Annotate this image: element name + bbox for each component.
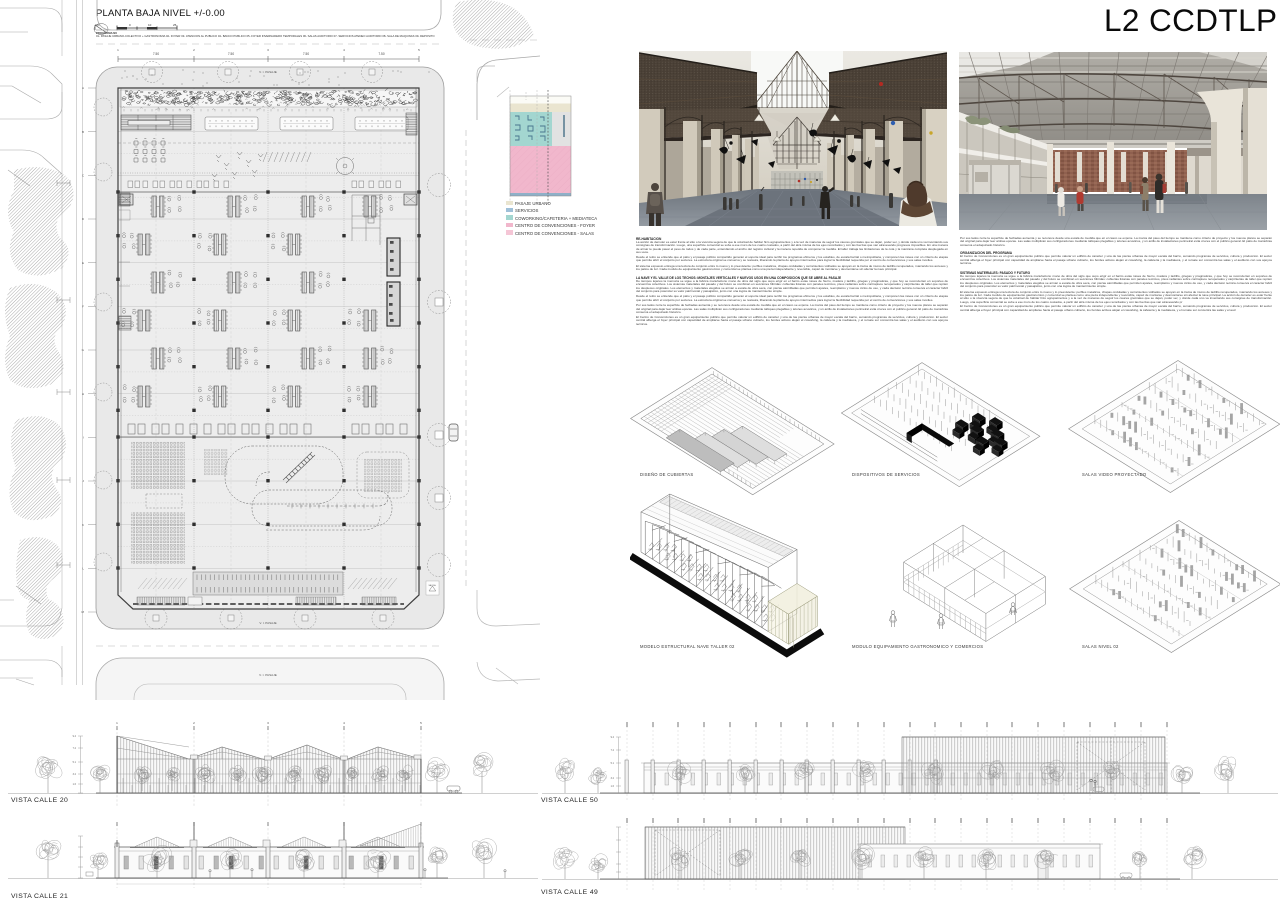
svg-text:B: B [82, 130, 84, 134]
svg-text:7.2: 7.2 [611, 749, 615, 752]
svg-text:E: E [82, 261, 84, 265]
svg-text:MODELO ESTRUCTURAL NAVE TALLER: MODELO ESTRUCTURAL NAVE TALLER 02 [640, 644, 735, 649]
svg-text:2: 2 [193, 48, 195, 52]
svg-text:7.50: 7.50 [378, 52, 384, 56]
svg-text:5: 5 [418, 48, 420, 52]
svg-text:I: I [83, 436, 84, 440]
svg-text:5: 5 [420, 721, 422, 725]
svg-text:MODULO EQUIPAMIENTO GASTRONOMI: MODULO EQUIPAMIENTO GASTRONOMICO Y COMER… [852, 644, 983, 649]
svg-text:3: 3 [267, 721, 269, 725]
svg-text:G: G [82, 348, 85, 352]
svg-text:V. I. PASAJE: V. I. PASAJE [259, 673, 277, 677]
svg-text:7.2: 7.2 [73, 747, 77, 750]
svg-text:3: 3 [267, 48, 269, 52]
svg-text:4: 4 [343, 721, 345, 725]
svg-text:9.4: 9.4 [73, 735, 77, 738]
svg-text:4: 4 [343, 48, 345, 52]
svg-text:1.6: 1.6 [73, 783, 77, 786]
svg-text:5.1: 5.1 [73, 761, 77, 764]
svg-text:D: D [82, 217, 85, 221]
svg-text:J: J [83, 479, 85, 483]
svg-text:V. I. PASAJE: V. I. PASAJE [259, 621, 276, 625]
svg-text:L: L [82, 567, 84, 571]
svg-text:SALAS VIDEO PROYECTADO: SALAS VIDEO PROYECTADO [1082, 472, 1147, 477]
svg-text:5.1: 5.1 [611, 762, 615, 765]
svg-text:F: F [82, 305, 84, 309]
svg-text:3.2: 3.2 [611, 777, 615, 780]
svg-text:3.2: 3.2 [73, 773, 77, 776]
svg-text:1: 1 [116, 721, 118, 725]
svg-text:7.50: 7.50 [153, 52, 159, 56]
svg-text:1: 1 [117, 48, 119, 52]
svg-text:C: C [82, 174, 85, 178]
svg-text:DISPOSITIVOS DE SERVICIOS: DISPOSITIVOS DE SERVICIOS [852, 472, 920, 477]
svg-text:V. I. PASAJE: V. I. PASAJE [259, 70, 277, 74]
svg-text:SALIDA: SALIDA [428, 584, 436, 587]
svg-text:7.50: 7.50 [228, 52, 234, 56]
svg-text:9.4: 9.4 [611, 736, 615, 739]
svg-text:H: H [82, 392, 84, 396]
svg-text:SALAS NIVEL 02: SALAS NIVEL 02 [1082, 644, 1119, 649]
svg-text:DISEÑO DE CUBIERTAS: DISEÑO DE CUBIERTAS [640, 472, 693, 477]
svg-text:7.50: 7.50 [303, 52, 309, 56]
svg-text:1.6: 1.6 [611, 785, 615, 788]
svg-text:M: M [82, 610, 85, 614]
svg-text:A: A [82, 86, 84, 90]
svg-text:K: K [82, 523, 84, 527]
svg-text:2: 2 [193, 721, 195, 725]
